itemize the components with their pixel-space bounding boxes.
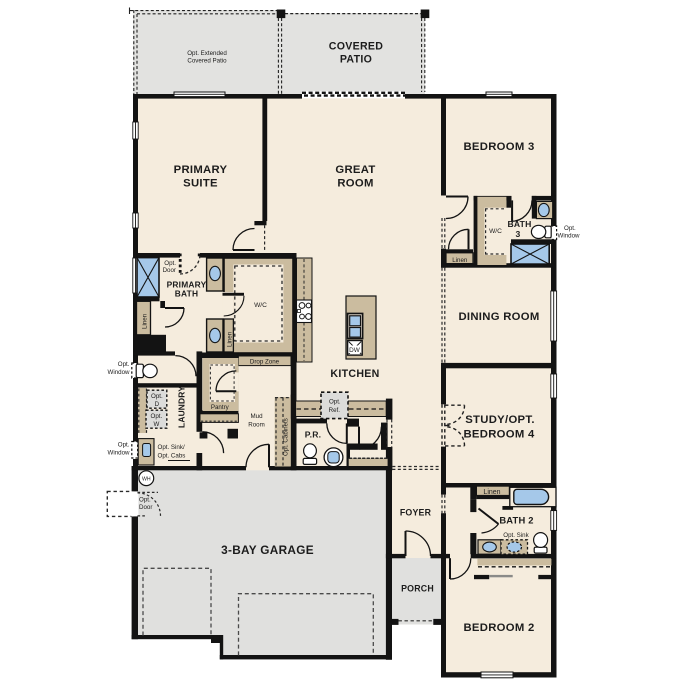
svg-text:DINING ROOM: DINING ROOM	[458, 311, 539, 323]
svg-text:Opt. Cabinets: Opt. Cabinets	[283, 418, 290, 456]
svg-text:Door: Door	[163, 267, 176, 274]
svg-text:BATH: BATH	[507, 219, 531, 229]
svg-text:Opt. Sink: Opt. Sink	[503, 532, 529, 539]
svg-text:Opt.: Opt.	[139, 497, 151, 504]
svg-text:KITCHEN: KITCHEN	[330, 368, 379, 380]
svg-text:BEDROOM 3: BEDROOM 3	[463, 141, 534, 153]
svg-text:Opt. Cabs: Opt. Cabs	[158, 453, 186, 460]
svg-text:Opt.: Opt.	[164, 260, 176, 267]
svg-text:PORCH: PORCH	[401, 584, 434, 594]
svg-text:Window: Window	[107, 369, 130, 376]
svg-text:P.R.: P.R.	[305, 430, 321, 440]
svg-text:3-BAY GARAGE: 3-BAY GARAGE	[221, 543, 314, 557]
svg-text:BEDROOM 2: BEDROOM 2	[463, 622, 534, 634]
svg-text:ROOM: ROOM	[337, 178, 373, 190]
svg-text:Opt.: Opt.	[329, 399, 341, 406]
svg-text:W: W	[153, 421, 159, 428]
svg-text:D: D	[155, 401, 160, 408]
svg-text:Drop Zone: Drop Zone	[250, 358, 280, 365]
svg-text:Opt.: Opt.	[118, 442, 130, 449]
svg-text:Opt.: Opt.	[564, 225, 576, 232]
svg-text:DW: DW	[349, 347, 361, 354]
svg-text:BEDROOM 4: BEDROOM 4	[463, 429, 535, 441]
svg-text:W/C: W/C	[254, 302, 267, 309]
svg-text:Window: Window	[107, 450, 130, 457]
svg-text:SUITE: SUITE	[183, 178, 218, 190]
svg-text:BATH 2: BATH 2	[499, 515, 533, 526]
svg-text:Covered Patio: Covered Patio	[187, 58, 227, 65]
svg-text:3: 3	[516, 229, 521, 239]
svg-text:Opt.: Opt.	[151, 393, 163, 400]
svg-text:Pantry: Pantry	[211, 404, 230, 411]
svg-text:BATH: BATH	[175, 289, 198, 299]
svg-text:Linen: Linen	[452, 257, 468, 264]
svg-text:Opt. Sink/: Opt. Sink/	[158, 444, 185, 451]
svg-text:Linen: Linen	[483, 489, 500, 496]
svg-text:Room: Room	[248, 422, 265, 429]
svg-text:STUDY/OPT.: STUDY/OPT.	[465, 414, 535, 426]
svg-text:GREAT: GREAT	[335, 164, 375, 176]
svg-text:PRIMARY: PRIMARY	[174, 164, 228, 176]
svg-text:Door: Door	[139, 504, 152, 511]
svg-text:Window: Window	[558, 233, 581, 240]
svg-text:Opt.: Opt.	[151, 413, 163, 420]
svg-text:PATIO: PATIO	[340, 54, 372, 66]
svg-text:FOYER: FOYER	[400, 508, 432, 518]
svg-text:WH: WH	[142, 476, 151, 482]
svg-text:W/C: W/C	[489, 228, 502, 235]
svg-text:COVERED: COVERED	[329, 41, 384, 53]
svg-text:Ref.: Ref.	[329, 407, 341, 414]
svg-text:Opt. Extended: Opt. Extended	[187, 50, 227, 57]
svg-text:LAUNDRY: LAUNDRY	[177, 386, 187, 428]
svg-text:Linen: Linen	[142, 313, 149, 329]
svg-text:Opt.: Opt.	[118, 361, 130, 368]
svg-text:Mud: Mud	[250, 413, 263, 420]
svg-text:Linen: Linen	[227, 331, 234, 347]
